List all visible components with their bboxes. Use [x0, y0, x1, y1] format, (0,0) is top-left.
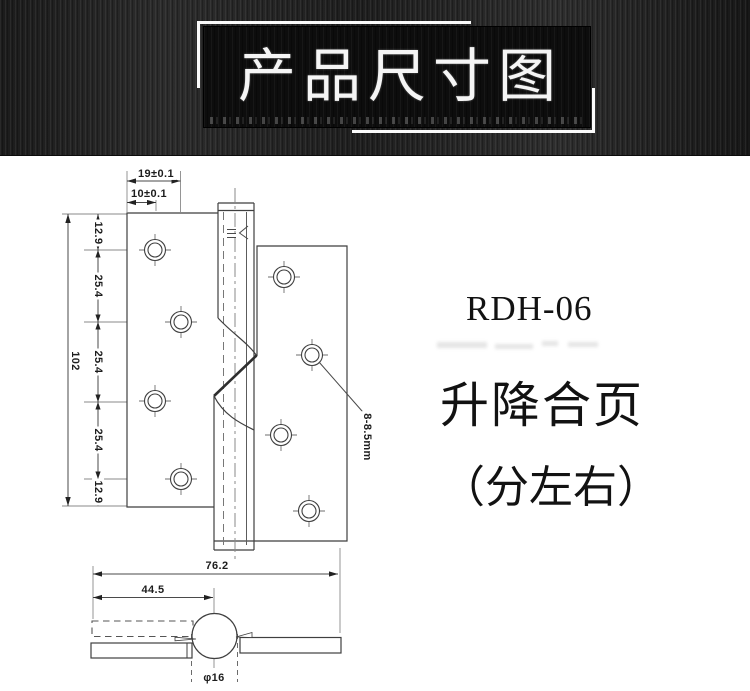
title-plate: 产品尺寸图: [204, 27, 590, 127]
product-note: （分左右）: [441, 466, 661, 510]
right-leaf-plan: [236, 633, 341, 654]
dim-label-10: 10±0.1: [129, 188, 169, 200]
knuckle-column: [214, 188, 257, 562]
finish-symbol-icon: [227, 226, 248, 239]
screw-hole: [139, 234, 171, 266]
dim-label-12-9-bottom: 12.9: [92, 478, 104, 505]
front-view: [62, 171, 362, 562]
dimension-arrows: [65, 178, 180, 506]
screw-hole: [165, 306, 197, 338]
knuckle-barrel: [192, 614, 237, 659]
dim-label-19: 19±0.1: [136, 168, 176, 180]
screw-hole: [268, 261, 300, 293]
hero-banner: 产品尺寸图: [0, 0, 750, 156]
dim-label-12-9-top: 12.9: [92, 219, 104, 246]
screw-hole: [293, 495, 325, 527]
dimension-lines: [68, 181, 181, 506]
watermark-smudge: [542, 341, 558, 346]
flipped-leaf-dashed: [92, 621, 193, 637]
dim-label-25-4-a: 25.4: [92, 272, 104, 299]
screw-hole: [265, 419, 297, 451]
hole-spec-label: 8-8.5mm: [361, 411, 373, 462]
product-name: 升降合页: [440, 381, 644, 430]
page-title: 产品尺寸图: [231, 48, 563, 106]
hole-spec-leader: [319, 362, 362, 417]
dim-label-44-5: 44.5: [139, 584, 166, 596]
extension-lines: [62, 171, 181, 506]
dim-label-25-4-c: 25.4: [92, 426, 104, 453]
watermark-smudge: [437, 342, 487, 348]
product-model: RDH-06: [466, 291, 593, 326]
right-leaf-outline: [253, 246, 347, 541]
product-dimension-page: 产品尺寸图: [0, 0, 750, 691]
screw-holes: [139, 234, 328, 527]
screw-hole: [139, 385, 171, 417]
watermark-smudge: [495, 344, 533, 349]
dim-label-102: 102: [69, 349, 81, 373]
dim-label-dia16: φ16: [201, 672, 226, 684]
dimension-lines: [93, 574, 338, 598]
watermark-smudge: [568, 342, 598, 347]
dim-label-25-4-b: 25.4: [92, 348, 104, 375]
screw-hole: [165, 463, 197, 495]
left-leaf-plan: [91, 637, 196, 658]
dimension-arrows: [93, 571, 338, 600]
dim-label-76-2: 76.2: [203, 560, 230, 572]
left-leaf-outline: [127, 213, 218, 507]
